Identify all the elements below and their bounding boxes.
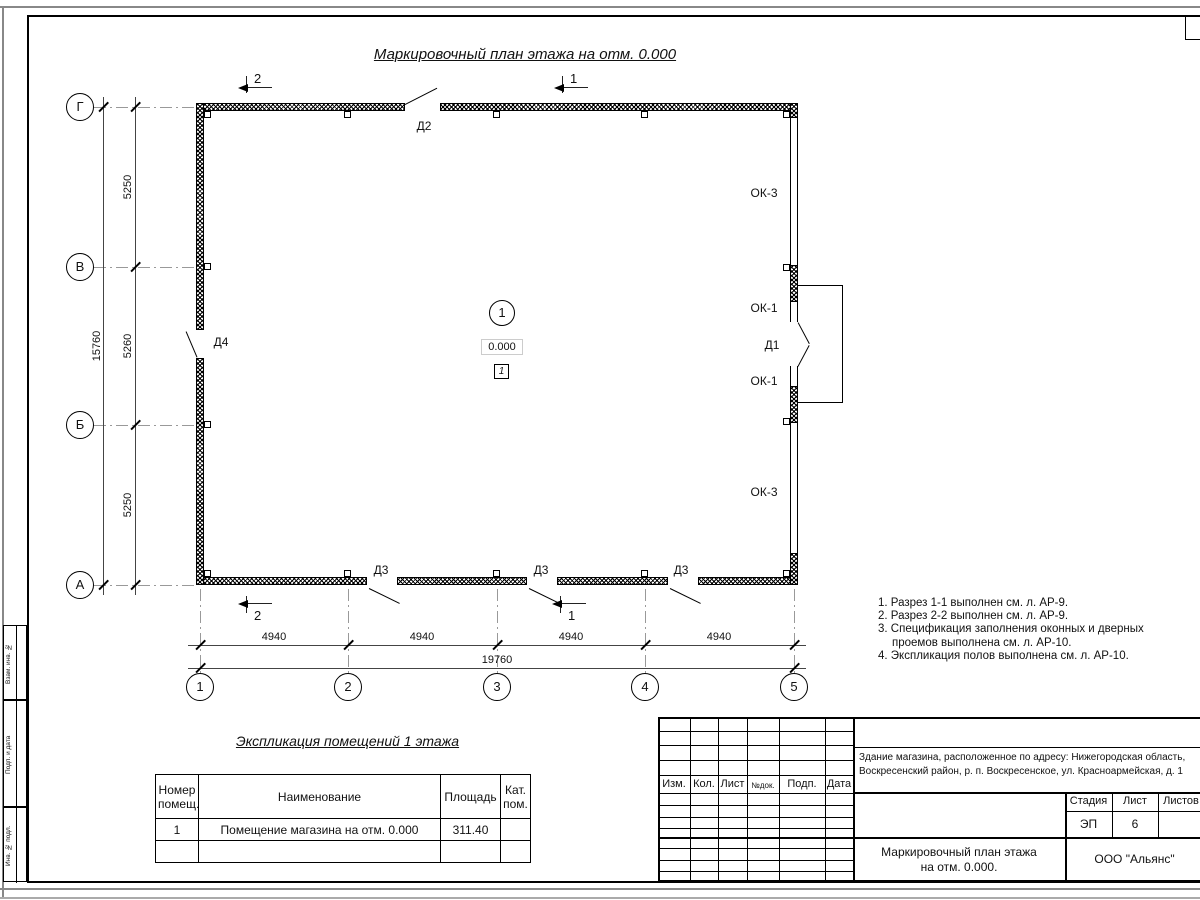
frame-left (27, 15, 29, 882)
side-stamp-box-3: Инв. № подл. (3, 807, 27, 882)
room-number-bubble: 1 (489, 300, 515, 326)
tb-line (658, 860, 853, 861)
door-leaf-d4 (185, 331, 197, 357)
axis-bubble-g: Г (66, 93, 94, 121)
note-line-1: 1. Разрез 1-1 выполнен см. л. АР-9. (878, 597, 1188, 610)
rev-header-podp: Подп. (779, 778, 825, 790)
plan-title: Маркировочный план этажа на отм. 0.000 (300, 46, 750, 63)
door-label-d1: Д1 (757, 338, 787, 352)
dim-bottom-total: 19760 (467, 654, 527, 666)
window-ok3-top (790, 118, 798, 265)
door-leaf-d3-3 (670, 588, 701, 604)
wall-top-right-segment (440, 103, 798, 111)
tb-line (658, 848, 853, 849)
sheet-value: 6 (1112, 817, 1158, 831)
dim-bottom-4: 4940 (689, 631, 749, 643)
stage-header: Стадия (1065, 795, 1112, 807)
section-mark-1-bottom-label: 1 (568, 608, 575, 623)
window-label-ok1-top: ОК-1 (743, 301, 785, 315)
axis-bubble-a: А (66, 571, 94, 599)
window-ok3-bottom (790, 423, 798, 553)
column-marker (204, 421, 211, 428)
rev-header-list: Лист (718, 778, 747, 790)
axis-bubble-b: Б (66, 411, 94, 439)
tb-line (779, 717, 780, 882)
axis-line-1 (200, 589, 201, 673)
axis-bubble-5: 5 (780, 673, 808, 701)
dim-left-2: 5260 (122, 316, 134, 376)
door-label-d3-1: Д3 (366, 563, 396, 577)
sheet-header: Лист (1112, 795, 1158, 807)
axis-line-4 (645, 589, 646, 673)
window-label-ok3-bottom: ОК-3 (743, 485, 785, 499)
explication-header-area: Площадь (441, 775, 501, 819)
tb-line (658, 817, 853, 818)
rev-header-ndok: №док. (747, 781, 779, 790)
stage-value: ЭП (1065, 817, 1112, 831)
wall-bottom-segment-2 (397, 577, 527, 585)
note-line-4: проемов выполнена см. л. АР-10. (878, 637, 1188, 650)
project-description: Здание магазина, расположенное по адресу… (859, 751, 1200, 779)
dim-left-total: 15760 (91, 316, 103, 376)
drawing-title: Маркировочный план этажа на отм. 0.000. (873, 845, 1045, 875)
axis-line-g (94, 107, 198, 108)
tb-line (658, 871, 853, 872)
explication-row-empty (156, 841, 531, 863)
dim-bottom-1: 4940 (244, 631, 304, 643)
tb-line (853, 747, 1200, 748)
tb-line (853, 717, 855, 882)
tb-line (1065, 811, 1200, 812)
axis-line-2 (348, 589, 349, 673)
company-name: ООО "Альянс" (1065, 837, 1200, 882)
column-marker (493, 111, 500, 118)
dim-line-left-outer (103, 97, 104, 595)
explication-title: Экспликация помещений 1 этажа (200, 733, 495, 749)
window-ok1-bottom (790, 366, 798, 386)
explication-header-number: Номер помещ. (156, 775, 199, 819)
axis-bubble-v: В (66, 253, 94, 281)
explication-header-category: Кат. пом. (501, 775, 531, 819)
axis-bubble-3: 3 (483, 673, 511, 701)
section-mark-2-top-label: 2 (254, 71, 261, 86)
column-marker (344, 111, 351, 118)
explication-cell-number: 1 (156, 819, 199, 841)
axis-bubble-4: 4 (631, 673, 659, 701)
door-label-d3-3: Д3 (666, 563, 696, 577)
project-line-2: Воскресенский район, р. п. Воскресенское… (859, 765, 1200, 779)
wall-left-upper (196, 103, 204, 330)
frame-top (27, 15, 1200, 17)
floor-type-mark: 1 (494, 364, 509, 379)
wall-top-left-segment (196, 103, 405, 111)
side-stamp-label-1: Взам. инв. № (5, 628, 16, 699)
dim-line-left-inner (135, 97, 136, 595)
format-corner-box (1185, 15, 1200, 40)
column-marker (641, 570, 648, 577)
paper-edge-bottom (0, 888, 1200, 890)
notes-block: 1. Разрез 1-1 выполнен см. л. АР-9. 2. Р… (878, 597, 1188, 663)
tb-line (658, 775, 853, 776)
wall-bottom-segment-1 (196, 577, 367, 585)
axis-bubble-2: 2 (334, 673, 362, 701)
rev-header-kol: Кол. (690, 778, 718, 790)
tb-line (825, 717, 826, 882)
explication-row: 1 Помещение магазина на отм. 0.000 311.4… (156, 819, 531, 841)
section-mark-1-top-line (564, 87, 588, 88)
sheets-header: Листов (1158, 795, 1200, 807)
side-stamp-box-2: Подп. и дата (3, 700, 27, 807)
tb-line (658, 745, 853, 746)
note-line-5: 4. Экспликация полов выполнена см. л. АР… (878, 650, 1188, 663)
window-ok1-top (790, 302, 798, 322)
dim-bottom-3: 4940 (541, 631, 601, 643)
section-mark-1-bottom-arrow (552, 600, 562, 608)
window-label-ok1-bottom: ОК-1 (743, 374, 785, 388)
tb-line (718, 717, 719, 882)
wall-right-corner-bottom (790, 553, 798, 585)
tb-line (658, 731, 853, 732)
tb-line (853, 792, 1200, 794)
wall-bottom-segment-3 (557, 577, 668, 585)
dim-bottom-2: 4940 (392, 631, 452, 643)
column-marker (344, 570, 351, 577)
window-label-ok3-top: ОК-3 (743, 186, 785, 200)
wall-left-lower (196, 358, 204, 585)
column-marker (204, 111, 211, 118)
door-leaf-d2 (405, 88, 438, 105)
side-stamp-label-2: Подп. и дата (5, 703, 16, 806)
door-label-d2: Д2 (408, 119, 440, 133)
door-label-d3-2: Д3 (526, 563, 556, 577)
section-mark-2-top-arrow (238, 84, 248, 92)
side-stamp-box-1: Взам. инв. № (3, 625, 27, 700)
axis-line-v (94, 267, 198, 268)
explication-cell-name: Помещение магазина на отм. 0.000 (199, 819, 441, 841)
section-mark-2-bottom-line (248, 603, 272, 604)
axis-bubble-1: 1 (186, 673, 214, 701)
wall-right-mid-1 (790, 265, 798, 302)
section-mark-1-top-arrow (554, 84, 564, 92)
note-line-3: 3. Спецификация заполнения оконных и две… (878, 623, 1188, 636)
room-elevation: 0.000 (481, 339, 523, 355)
rev-header-data: Дата (825, 778, 853, 790)
section-mark-1-bottom-line (562, 603, 586, 604)
tb-line (658, 760, 853, 761)
explication-cell-area: 311.40 (441, 819, 501, 841)
dim-left-3: 5250 (122, 475, 134, 535)
column-marker (204, 570, 211, 577)
column-marker (783, 418, 790, 425)
column-marker (641, 111, 648, 118)
note-line-2: 2. Разрез 2-2 выполнен см. л. АР-9. (878, 610, 1188, 623)
explication-cell-category (501, 819, 531, 841)
tb-line (747, 717, 748, 882)
explication-table: Номер помещ. Наименование Площадь Кат. п… (155, 774, 531, 863)
section-mark-2-top-line (248, 87, 272, 88)
axis-line-5 (794, 589, 795, 673)
paper-edge-top (0, 6, 1200, 8)
axis-line-a (94, 585, 198, 586)
explication-header-name: Наименование (199, 775, 441, 819)
axis-line-b (94, 425, 198, 426)
dim-line-bottom-outer (188, 668, 806, 669)
section-mark-2-bottom-label: 2 (254, 608, 261, 623)
paper-edge-bottom2 (0, 897, 1200, 899)
tb-line (658, 805, 853, 806)
column-marker (493, 570, 500, 577)
wall-right-corner-top (790, 103, 798, 118)
rev-header-izm: Изм. (658, 778, 690, 790)
dim-left-1: 5250 (122, 157, 134, 217)
column-marker (783, 264, 790, 271)
door-leaf-d3-1 (369, 588, 400, 604)
porch-outline (798, 285, 843, 403)
column-marker (783, 111, 790, 118)
section-mark-2-bottom-arrow (238, 600, 248, 608)
section-mark-1-top-label: 1 (570, 71, 577, 86)
tb-line (690, 717, 691, 882)
side-stamp-label-3: Инв. № подл. (5, 810, 16, 881)
wall-bottom-segment-4 (698, 577, 798, 585)
tb-line (658, 793, 853, 794)
wall-right-mid-2 (790, 386, 798, 423)
column-marker (783, 570, 790, 577)
column-marker (204, 263, 211, 270)
project-line-1: Здание магазина, расположенное по адресу… (859, 751, 1200, 765)
door-label-d4: Д4 (206, 335, 236, 349)
tb-line (658, 828, 853, 829)
